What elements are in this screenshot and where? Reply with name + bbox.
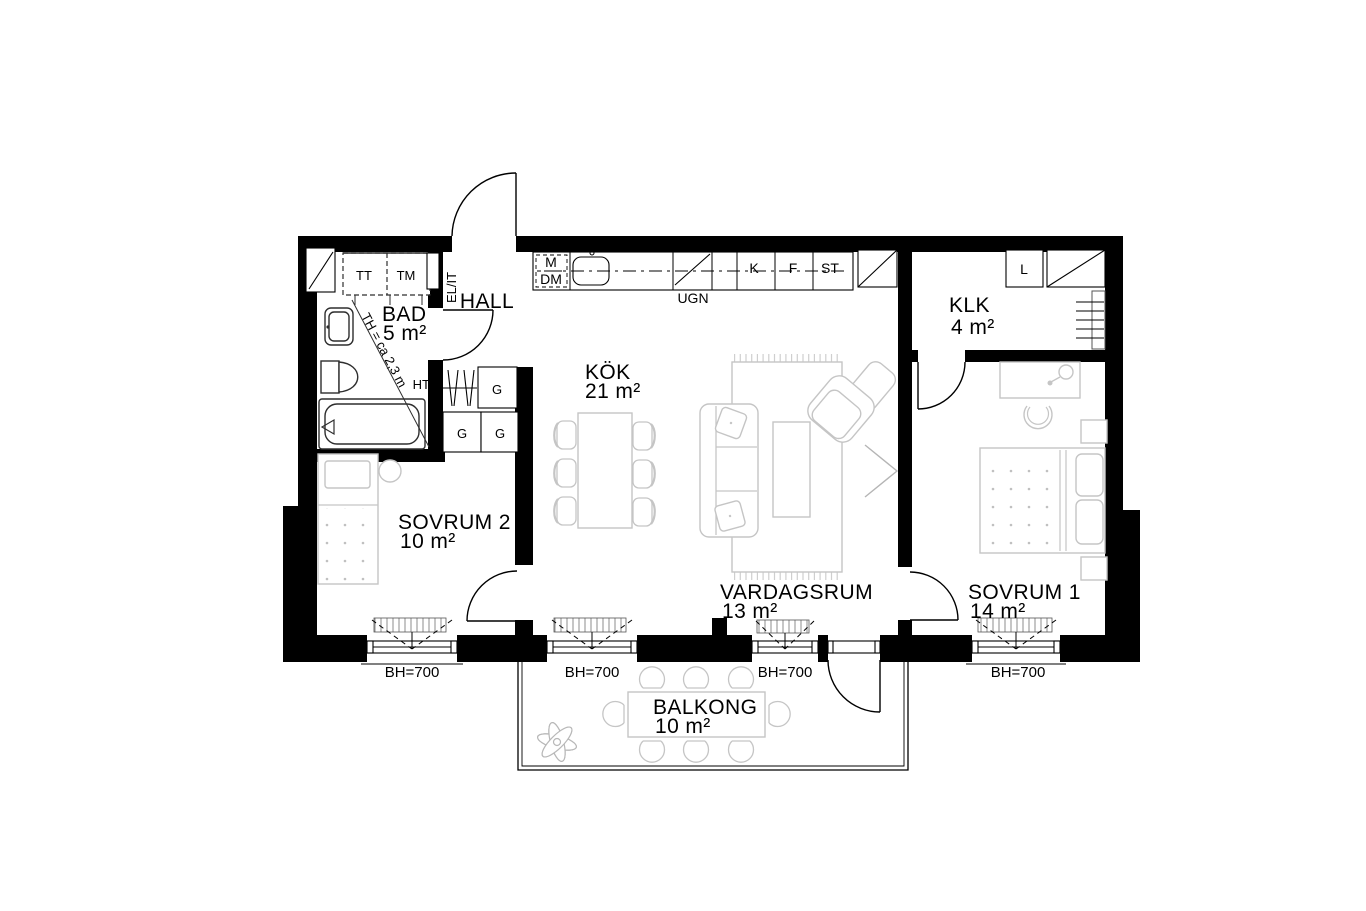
desk-chair [1024, 406, 1052, 429]
fridge-label: K [749, 260, 759, 276]
electrical-panel-label: EL/IT [444, 272, 459, 303]
window-kok [547, 618, 637, 653]
microwave-label: M [545, 254, 557, 270]
electrical-panel [427, 253, 439, 289]
bathroom-sink [325, 308, 353, 345]
area-label-klk: 4 m² [951, 316, 995, 339]
radiator-icon [554, 618, 626, 632]
area-label-bad: 5 m² [383, 322, 427, 345]
bedside-table [379, 460, 401, 482]
linen-cabinet-label: L [1020, 261, 1028, 277]
kitchen-counter [533, 251, 853, 290]
throw-pillow [714, 500, 746, 532]
area-label-balkong: 10 m² [655, 715, 711, 738]
wardrobe-label: G [492, 382, 502, 397]
bedroom1-door [910, 572, 958, 620]
cleaning-cabinet-label: ST [821, 260, 839, 276]
double-bed [980, 448, 1105, 553]
radiator-klk-icon [1076, 291, 1105, 349]
bathtub [319, 399, 425, 449]
bh-label-sovrum1: BH=700 [991, 664, 1046, 681]
coat-rack-icon [443, 370, 477, 406]
area-label-kok: 21 m² [585, 380, 641, 403]
bh-label-sovrum2: BH=700 [385, 664, 440, 681]
window-sovrum1 [966, 618, 1066, 664]
coffee-table [773, 422, 810, 517]
window-vardagsrum [752, 620, 818, 653]
wardrobe-label: G [457, 426, 467, 441]
shaft-kok-icon [858, 250, 897, 287]
room-label-hall: HALL [460, 290, 514, 313]
dining-table [578, 413, 632, 528]
wardrobe-label: G [495, 426, 505, 441]
dryer-label: TT [356, 268, 372, 283]
washer-label: TM [397, 268, 416, 283]
area-label-sovrum1: 14 m² [970, 600, 1026, 623]
entrance-door [452, 173, 516, 236]
shaft-klk-icon [1047, 250, 1105, 287]
sofa [700, 404, 758, 537]
area-label-sovrum2: 10 m² [400, 530, 456, 553]
bathroom-door [443, 310, 493, 360]
towel-warmer-label: HT [413, 377, 430, 392]
oven-label: UGN [677, 290, 708, 306]
room-label-klk: KLK [949, 294, 990, 317]
nightstand [1081, 420, 1107, 443]
radiator-icon [374, 618, 446, 632]
balcony-door [828, 641, 880, 712]
bh-label-vardagsrum: BH=700 [758, 664, 813, 681]
area-label-vardagsrum: 13 m² [722, 600, 778, 623]
toilet [321, 361, 358, 393]
tv-icon [865, 445, 897, 497]
window-sovrum2 [361, 618, 463, 664]
bedroom2-door [467, 571, 517, 621]
freezer-label: F [789, 260, 798, 276]
bh-label-kok: BH=700 [565, 664, 620, 681]
dishwasher-label: DM [540, 271, 562, 287]
floor-plan-page: BAD 5 m² HALL KÖK 21 m² KLK 4 m² SOVRUM … [0, 0, 1366, 911]
shaft-icon [306, 248, 335, 292]
plant-icon [536, 721, 578, 763]
floor-plan-drawing: BAD 5 m² HALL KÖK 21 m² KLK 4 m² SOVRUM … [0, 0, 1366, 911]
nightstand [1081, 557, 1107, 580]
desk [1000, 362, 1080, 398]
closet-door [918, 362, 965, 409]
single-bed [318, 454, 378, 584]
window-sill-labels: BH=700 BH=700 BH=700 BH=700 [385, 664, 1046, 681]
